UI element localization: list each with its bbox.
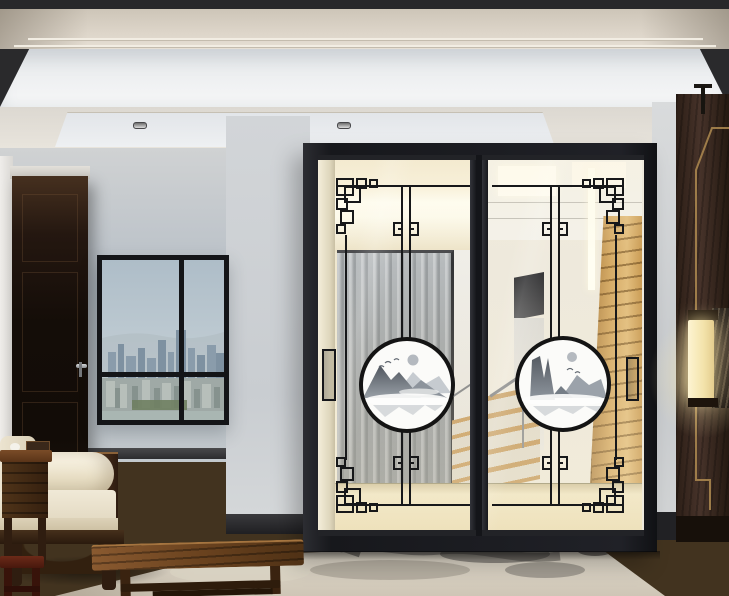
ceiling-spotlight bbox=[133, 122, 147, 129]
sconce-marble-side bbox=[712, 308, 729, 408]
corner-bench bbox=[0, 556, 46, 596]
ceiling-molding-line bbox=[28, 38, 703, 41]
baseboard-walnut bbox=[676, 516, 729, 542]
corner-bench-shelf bbox=[4, 586, 40, 592]
door-floor-shadow bbox=[298, 551, 660, 560]
sliding-glass-door-unit bbox=[303, 143, 657, 552]
wall-pillar bbox=[226, 116, 310, 514]
sconce-top-cap bbox=[688, 310, 718, 320]
tea-table bbox=[91, 533, 307, 596]
tray-table-top bbox=[0, 450, 52, 462]
city-skyline bbox=[102, 260, 224, 420]
tray-table-body bbox=[2, 462, 48, 518]
door-panel bbox=[22, 272, 78, 392]
door-handle-plate bbox=[79, 362, 82, 377]
corner-bench-top bbox=[0, 556, 44, 568]
city-view-window bbox=[97, 255, 229, 425]
medallion-right bbox=[517, 338, 609, 430]
sconce-bottom-cap bbox=[688, 398, 718, 407]
ceiling-cove-band bbox=[0, 49, 729, 107]
hanging-rod bbox=[701, 86, 705, 114]
door-panel bbox=[22, 194, 78, 262]
ceiling-recess-bar bbox=[0, 0, 729, 9]
tea-table-top bbox=[91, 539, 304, 571]
window-mullion-vertical bbox=[179, 260, 184, 420]
ceiling-upper-band bbox=[0, 9, 729, 49]
lattice-and-medallions bbox=[318, 155, 644, 536]
window-mullion-horizontal bbox=[102, 372, 224, 377]
ceiling-molding-line bbox=[14, 45, 716, 48]
baseboard-pillar bbox=[226, 514, 310, 534]
medallion-left bbox=[361, 339, 453, 431]
living-room-scene bbox=[0, 0, 729, 596]
wall-sconce bbox=[688, 320, 714, 400]
ceiling-spotlight bbox=[337, 122, 351, 129]
